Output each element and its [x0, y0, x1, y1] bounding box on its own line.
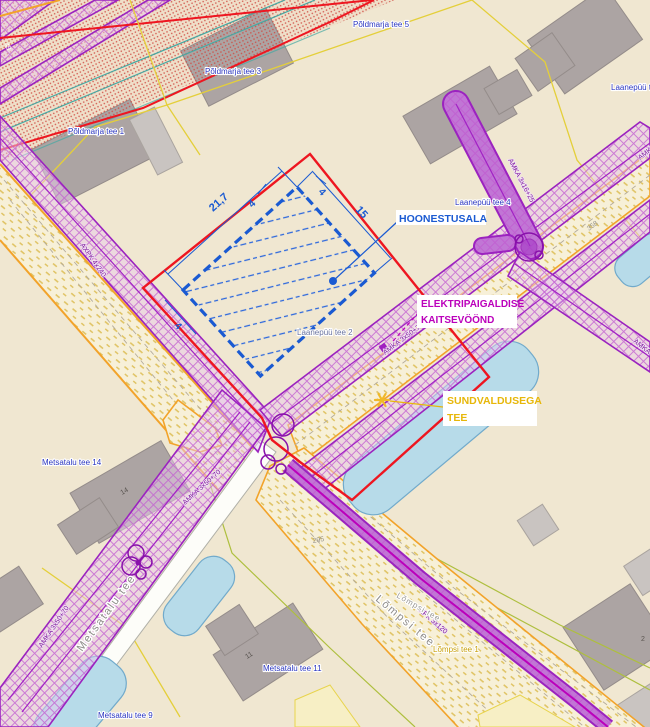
- parcel-label: Metsatalu tee 9: [98, 711, 153, 720]
- map-viewport[interactable]: 49: [0, 0, 650, 727]
- callout-kaitsevoond-line2: KAITSEVÖÖND: [421, 313, 494, 326]
- plan-map-canvas[interactable]: 49: [0, 0, 650, 727]
- parcel-label: Põldmarja tee 5: [353, 20, 410, 29]
- callout-sundvaldus-line1: SUNDVALDUSEGA: [447, 395, 542, 407]
- callout-kaitsevoond: ELEKTRIPAIGALDISE KAITSEVÖÖND: [417, 295, 524, 328]
- parcel-label: Põldmarja tee 1: [68, 127, 125, 136]
- parcel-label: Põldmarja tee 3: [205, 67, 262, 76]
- parcel-label: Laanepüü tee 6: [611, 83, 650, 92]
- callout-hoonestusala: HOONESTUSALA: [396, 210, 488, 225]
- parcel-label: Lõmpsi tee 1: [433, 645, 479, 654]
- building-number: 2: [641, 636, 645, 643]
- callout-sundvaldus: SUNDVALDUSEGA TEE: [443, 391, 542, 426]
- callout-kaitsevoond-line1: ELEKTRIPAIGALDISE: [421, 299, 524, 310]
- callout-sundvaldus-line2: TEE: [447, 412, 467, 424]
- parcel-label: Metsatalu tee 14: [42, 458, 102, 467]
- parcel-label: Metsatalu tee 11: [263, 664, 322, 673]
- parcel-label: Laanepüü tee 4: [455, 198, 511, 207]
- callout-hoonestusala-label: HOONESTUSALA: [399, 213, 488, 225]
- parcel-label: Laanepüü tee 2: [297, 328, 353, 337]
